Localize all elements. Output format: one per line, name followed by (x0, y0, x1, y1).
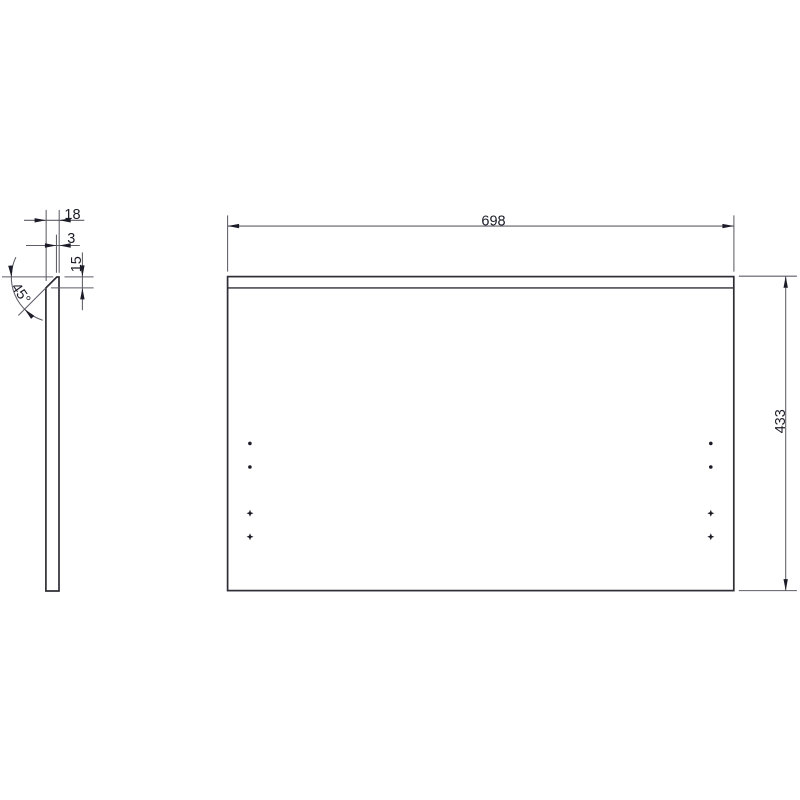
svg-text:698: 698 (481, 213, 505, 229)
svg-text:433: 433 (773, 409, 789, 433)
svg-text:15: 15 (69, 256, 85, 272)
svg-text:3: 3 (67, 231, 75, 247)
svg-text:18: 18 (64, 207, 80, 223)
